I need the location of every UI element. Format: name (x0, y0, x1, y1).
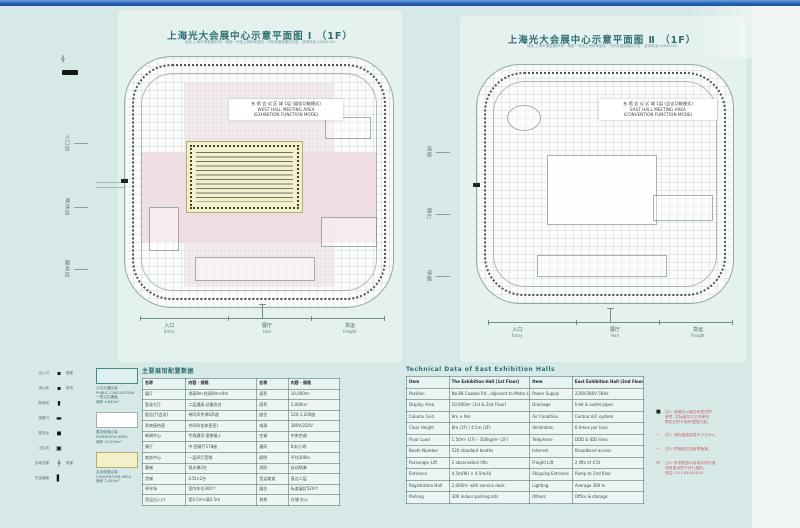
table-cell: 共6间(含休息室) (186, 421, 257, 432)
left-dimension-line: 入口 Entry 展厅 Hall 货运 Freight (140, 318, 384, 319)
table-cell: 宽4.5m×高4.5m (186, 495, 257, 506)
table-cell: 报告厅(会议) (143, 410, 186, 421)
note-line-en2: (EXHIBITION FUNCTION MODE) (231, 112, 341, 118)
table-row: PositionNo.88 Caobao Rd., adjacent to Me… (407, 388, 644, 400)
table-cell: 停车场 (143, 484, 186, 495)
plan-detail-block (507, 105, 541, 131)
table-cell: 新闻中心 (143, 431, 186, 442)
plan-detail-block (149, 207, 179, 251)
table-cell: 座位 (257, 410, 289, 421)
table-cell: 平均300lx (288, 453, 339, 464)
margin-notes: ■注1: 本图所示展位布置仅供参考, 实际展位以主办单位审定后的平面布置图为准。… (656, 410, 744, 485)
swatch-caption-line: 面积 10,000m² (96, 440, 142, 445)
table-header-cell: The Exhibition Hall (1st Floor) (449, 377, 530, 389)
legend-label-right: 卷帘 (66, 386, 73, 391)
table-cell: 专线通讯·宽带接入 (186, 431, 257, 442)
table-cell: 面积 (257, 389, 289, 400)
legend-row: 卫生间▣ (28, 441, 94, 456)
axis-label: 展厅 Hall (595, 327, 635, 338)
margin-note: ■注1: 本图所示展位布置仅供参考, 实际展位以主办单位审定后的平面布置图为准。 (656, 410, 744, 424)
table-row: Passenger Lift2 observation liftsFreight… (407, 457, 644, 469)
axis-label: 展厅 Hall (247, 323, 287, 334)
table-row: Display Area10,000m² (1st & 2nd Floor)Dr… (407, 400, 644, 412)
table-row: Registration Hall2,000m² with service de… (407, 480, 644, 492)
main-hall-yellow (186, 141, 303, 213)
between-label-3: 道路 (426, 270, 433, 282)
note-lines: 注2: 消防通道宽度不小于3m。 (665, 433, 718, 438)
between-label-2: 展厅 (426, 208, 433, 220)
table-cell: 空调 (257, 431, 289, 442)
legend-row: 消火栓▪卷帘 (28, 381, 94, 396)
table-cell: DDD & IDD lines (572, 434, 643, 446)
right-plan-subtitle: 地址:上海市漕宝路88号 · 地铁一号线上海体育馆站 · 内环线漕溪路出口处 ·… (468, 44, 736, 49)
table-row: Floor Load1.5t/m² (1F) · 350kg/m² (2F)Te… (407, 434, 644, 446)
legend-row: 自动扶梯┼电梯 (28, 456, 94, 471)
right-floor-plan: 东 馆 会 议 区 域 1层 (会议功能模式) EAST HALL MEETIN… (476, 64, 734, 304)
table-row: 登录大厅二层通高·总服务台面积2,000m² (143, 400, 340, 411)
table-row: 贵宾接待室共6间(含休息室)电源380V/220V (143, 421, 340, 432)
right-plan-note: 东 馆 会 议 区 域 1层 (会议功能模式) EAST HALL MEETIN… (599, 99, 717, 120)
table-cell: 380V/220V (288, 421, 339, 432)
legend-swatches: 公共交通区域PUBLIC CIRCULATION一层公共通道面积 4,600m²… (96, 368, 142, 492)
table-row: 展厅净高8m·柱网9m×9m面积10,000m² (143, 389, 340, 400)
table-row: 停车场室内车位300个展位标准展位520个 (143, 484, 340, 495)
legend-row: 疏散口▬ (28, 411, 94, 426)
table-cell: Office & storage (572, 492, 643, 504)
axis-label: 货运 Freight (330, 323, 370, 334)
table-cell: Registration Hall (407, 480, 450, 492)
axis-label: 入口 Entry (497, 327, 537, 338)
table-row: Parking300 indoor parking lotsOthersOffi… (407, 492, 644, 504)
table-cell: 2,000m² with service desk (449, 480, 530, 492)
booth-rows (196, 152, 293, 202)
table-cell: Telephone (530, 434, 573, 446)
table-cell: Position (407, 388, 450, 400)
table-cell: Ventilation (530, 423, 573, 435)
table-cell: Inlet & outlet pipes (572, 400, 643, 412)
technical-data-table: Technical Data of East Exhibition Halls … (406, 366, 644, 504)
legend-symbol-icon: ┼ (52, 460, 66, 468)
note-line-en2: (CONVENTION FUNCTION MODE) (601, 112, 715, 118)
swatch-color-box (96, 368, 138, 384)
table-cell: 1.5t/m² (1F) · 350kg/m² (2F) (449, 434, 530, 446)
legend-label: 卫生间 (28, 446, 52, 451)
table-cell: Central A/C system (572, 411, 643, 423)
table-cell: 货运坡道 (257, 474, 289, 485)
table-cell: Clear Height (407, 423, 450, 435)
table-row: Booth Number520 standard boothsInternetB… (407, 446, 644, 458)
legend-label: 出入口 (28, 371, 52, 376)
plan-detail-block (321, 217, 377, 247)
plan-detail-block (547, 155, 657, 225)
right-dimension-line: 入口 Entry 展厅 Hall 货运 Freight (488, 322, 732, 323)
table-cell: Lighting (530, 480, 573, 492)
scale-bar-icon (62, 70, 78, 75)
table-row: 报告厅(会议)带同声传译6声道座位120-1,200座 (143, 410, 340, 421)
table-cell: 一层序厅西侧 (186, 453, 257, 464)
legend-symbol-icon: ▣ (52, 445, 66, 453)
legend-row: 配电间▮ (28, 396, 94, 411)
table-cell: 净高8m·柱网9m×9m (186, 389, 257, 400)
table-cell: 4.5m(W) × 4.5m(H) (449, 469, 530, 481)
table-cell: 货运出入口 (143, 495, 186, 506)
table-cell: Ramp to 2nd floor (572, 469, 643, 481)
swatch-caption-line: 面积 4,600m² (96, 400, 142, 405)
note-bullet-icon: ≡ (656, 461, 665, 475)
table-row: 货梯4.5t×2台货运坡道直达二层 (143, 474, 340, 485)
legend-label: 货运通道 (28, 476, 52, 481)
table-cell: Display Area (407, 400, 450, 412)
paper-right-margin (752, 6, 800, 528)
table-header-cell: 内容 · 规格 (186, 379, 257, 390)
margin-label-3: 服务区 (64, 260, 71, 278)
table-row: 商务中心一层序厅西侧照明平均300lx (143, 453, 340, 464)
plan-detail-block (653, 195, 713, 221)
table-cell: 220V/380V 50Hz (572, 388, 643, 400)
table-cell: 展位 (257, 484, 289, 495)
margin-label-1: 入口区 (64, 134, 71, 152)
table-cell: Freight Lift (530, 457, 573, 469)
table-cell: 2,000m² (288, 400, 339, 411)
table-cell: Average 300 lx (572, 480, 643, 492)
table-cell: 二层通高·总服务台 (186, 400, 257, 411)
axis-label: 货运 Freight (678, 327, 718, 338)
table-cell: Power Supply (530, 388, 573, 400)
table-cell: Booth Number (407, 446, 450, 458)
note-line: 审定后的平面布置图为准。 (665, 420, 712, 425)
legend-symbol-icon: ▌ (52, 475, 66, 483)
table-row: 餐厅中·西餐厅178座通风6次/小时 (143, 442, 340, 453)
margin-note: –注2: 消防通道宽度不小于3m。 (656, 433, 744, 438)
legend-row: 服务台◼ (28, 426, 94, 441)
table-cell: 6 times per hour (572, 423, 643, 435)
legend-symbol-icon: ▪ (52, 385, 66, 393)
note-bullet-icon: – (656, 447, 665, 452)
note-lines: 注3: 特装展位须报审备案。 (665, 447, 712, 452)
margin-note: –注3: 特装展位须报审备案。 (656, 447, 744, 452)
table-cell: 6次/小时 (288, 442, 339, 453)
legend-label: 服务台 (28, 431, 52, 436)
table-header-cell: 名称 (257, 379, 289, 390)
table-cell: 4.5t×2台 (186, 474, 257, 485)
hall-config-table-title: 主要展馆配置数据 (142, 366, 340, 375)
legend-label-right: 楼梯 (66, 371, 73, 376)
table-cell: 观光梯2台 (186, 463, 257, 474)
legend-symbols: 出入口▪楼梯消火栓▪卷帘配电间▮疏散口▬服务台◼卫生间▣自动扶梯┼电梯货运通道▌ (28, 366, 94, 486)
axis-label: 入口 Entry (149, 323, 189, 334)
table-row: 新闻中心专线通讯·宽带接入空调中央空调 (143, 431, 340, 442)
table-cell: 通风 (257, 442, 289, 453)
table-cell: 仓储·办公 (288, 495, 339, 506)
legend-swatch: 公共交通区域PUBLIC CIRCULATION一层公共通道面积 4,600m² (96, 368, 142, 404)
note-line: 注2: 消防通道宽度不小于3m。 (665, 433, 718, 438)
table-header-row: ItemThe Exhibition Hall (1st Floor)ItemE… (407, 377, 644, 389)
table-cell: 10,000m² (1st & 2nd Floor) (449, 400, 530, 412)
note-line: 注3: 特装展位须报审备案。 (665, 447, 712, 452)
table-header-row: 名称内容 · 规格名称内容 · 规格 (143, 379, 340, 390)
table-cell: Drainage (530, 400, 573, 412)
table-cell: 520 standard booths (449, 446, 530, 458)
table-cell: 8m (1F) / 4.5m (2F) (449, 423, 530, 435)
table-cell: 客梯 (143, 463, 186, 474)
technical-data-table-title: Technical Data of East Exhibition Halls (406, 366, 644, 373)
table-cell: 登录大厅 (143, 400, 186, 411)
table-cell: 120-1,200座 (288, 410, 339, 421)
table-cell: 直达二层 (288, 474, 339, 485)
plan-detail-block (537, 255, 667, 277)
table-row: 客梯观光梯2台消防自动喷淋 (143, 463, 340, 474)
table-cell: 2 lifts of 4.5t (572, 457, 643, 469)
table-cell: Entrance (407, 469, 450, 481)
road-line (96, 187, 126, 188)
table-cell: 中·西餐厅178座 (186, 442, 257, 453)
note-line: 电话: 021-64842500 (665, 471, 717, 476)
table-cell: Internet (530, 446, 573, 458)
swatch-caption: 展览使用区域EXHIBITION AREA面积 10,000m² (96, 430, 142, 444)
legend-label-right: 电梯 (66, 461, 73, 466)
legend-label: 配电间 (28, 401, 52, 406)
west-entrance-mark (121, 179, 128, 183)
legend-swatch: 展览使用区域EXHIBITION AREA面积 10,000m² (96, 412, 142, 444)
table-header-cell: Item (530, 377, 573, 389)
table-row: Clear Height8m (1F) / 4.5m (2F)Ventilati… (407, 423, 644, 435)
scanned-document-view: EF 上海光大会展中心示意平面图 Ⅰ （1F） 地址:上海市漕宝路88号 · 地… (0, 0, 800, 528)
table-header-cell: Item (407, 377, 450, 389)
note-bullet-icon: ■ (656, 410, 665, 424)
note-lines: 注1: 本图所示展位布置仅供参考, 实际展位以主办单位审定后的平面布置图为准。 (665, 410, 712, 424)
legend-symbol-icon: ▪ (52, 370, 66, 378)
legend-label: 疏散口 (28, 416, 52, 421)
plan-detail-block (325, 117, 371, 139)
swatch-caption: 会议使用区域CONVENTION AREA面积 2,400m² (96, 470, 142, 484)
table-row: Entrance4.5m(W) × 4.5m(H)Shipping Entran… (407, 469, 644, 481)
margin-note: ≡注4: 技术数据以现场实测为准,如有变动恕不另行通知。电话: 021-6484… (656, 461, 744, 475)
swatch-caption: 公共交通区域PUBLIC CIRCULATION一层公共通道面积 4,600m² (96, 386, 142, 404)
table-cell: Floor Load (407, 434, 450, 446)
table-cell: 标准展位520个 (288, 484, 339, 495)
left-floor-plan: 东 馆 会 议 区 域 1层 (展览功能模式) WEST HALL MEETIN… (124, 56, 394, 308)
table-cell: 自动喷淋 (288, 463, 339, 474)
swatch-color-box (96, 412, 138, 428)
table-cell: 展厅 (143, 389, 186, 400)
table-cell: Others (530, 492, 573, 504)
table-cell: 面积 (257, 400, 289, 411)
table-cell: Parking (407, 492, 450, 504)
survey-mark-icon: ╬ (61, 56, 65, 63)
table-cell: 消防 (257, 463, 289, 474)
table-cell: 餐厅 (143, 442, 186, 453)
table-cell: 其他 (257, 495, 289, 506)
table-cell: No.88 Caobao Rd., adjacent to Metro Line… (449, 388, 530, 400)
table-cell: 贵宾接待室 (143, 421, 186, 432)
table-header-cell: 名称 (143, 379, 186, 390)
note-lines: 注4: 技术数据以现场实测为准,如有变动恕不另行通知。电话: 021-64842… (665, 461, 717, 475)
legend-row: 货运通道▌ (28, 471, 94, 486)
margin-label-2: 通道区 (64, 198, 71, 216)
legend-symbol-icon: ▮ (52, 400, 66, 408)
table-cell: 2 observation lifts (449, 457, 530, 469)
swatch-color-box (96, 452, 138, 468)
table-cell: 中央空调 (288, 431, 339, 442)
legend-row: 出入口▪楼梯 (28, 366, 94, 381)
left-plan-note: 东 馆 会 议 区 域 1层 (展览功能模式) WEST HALL MEETIN… (229, 99, 343, 120)
table-cell: Shipping Entrance (530, 469, 573, 481)
legend-label: 消火栓 (28, 386, 52, 391)
legend-symbol-icon: ◼ (52, 430, 66, 438)
table-row: 货运出入口宽4.5m×高4.5m其他仓储·办公 (143, 495, 340, 506)
table-cell: 300 indoor parking lots (449, 492, 530, 504)
table-cell: 货梯 (143, 474, 186, 485)
table-header-cell: East Exhibition Hall (2nd Floor) (572, 377, 643, 389)
plan-detail-block (195, 257, 315, 281)
table-cell: 照明 (257, 453, 289, 464)
left-plan-subtitle: 地址:上海市漕宝路88号 · 地铁一号线上海体育馆站 · 内环线漕溪路出口处 ·… (128, 40, 392, 45)
swatch-caption-line: 面积 2,400m² (96, 479, 142, 484)
table-cell: 电源 (257, 421, 289, 432)
table-row: Column Grid9m × 9mAir ConditionCentral A… (407, 411, 644, 423)
scan-paper: 上海光大会展中心示意平面图 Ⅰ （1F） 地址:上海市漕宝路88号 · 地铁一号… (0, 6, 800, 528)
table-cell: Air Condition (530, 411, 573, 423)
table-cell: Passenger Lift (407, 457, 450, 469)
legend-swatch: 会议使用区域CONVENTION AREA面积 2,400m² (96, 452, 142, 484)
table-cell: Column Grid (407, 411, 450, 423)
table-cell: 室内车位300个 (186, 484, 257, 495)
hall-config-table-grid: 名称内容 · 规格名称内容 · 规格展厅净高8m·柱网9m×9m面积10,000… (142, 378, 340, 506)
table-cell: Broadband access (572, 446, 643, 458)
legend-label: 自动扶梯 (28, 461, 52, 466)
table-cell: 带同声传译6声道 (186, 410, 257, 421)
table-header-cell: 内容 · 规格 (288, 379, 339, 390)
note-bullet-icon: – (656, 433, 665, 438)
table-cell: 商务中心 (143, 453, 186, 464)
hall-config-table: 主要展馆配置数据 名称内容 · 规格名称内容 · 规格展厅净高8m·柱网9m×9… (142, 366, 340, 506)
between-label-1: 连廊 (426, 146, 433, 158)
technical-data-table-grid: ItemThe Exhibition Hall (1st Floor)ItemE… (406, 376, 644, 504)
table-cell: 9m × 9m (449, 411, 530, 423)
legend-symbol-icon: ▬ (52, 415, 66, 423)
west-entrance-mark (473, 183, 480, 187)
table-cell: 10,000m² (288, 389, 339, 400)
